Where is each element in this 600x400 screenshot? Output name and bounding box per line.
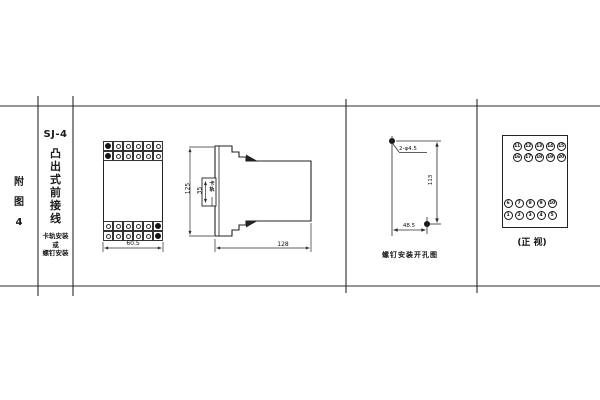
terminal-screw-icon [156, 144, 161, 149]
terminal-screw-icon [126, 234, 131, 239]
front-view-terminal-grid-bottom [103, 221, 163, 241]
terminal-cell [153, 221, 163, 231]
side-view-profile [202, 146, 311, 236]
terminal-cell [123, 151, 133, 161]
hole-spec-label: 2-φ4.5 [399, 146, 417, 152]
depth-dimension: 128 [270, 241, 296, 248]
terminal-screw-icon [136, 224, 141, 229]
terminal-pin: 20 [557, 153, 566, 162]
terminal-screw-icon [126, 224, 131, 229]
wiring-type-char: 出 [39, 160, 72, 173]
mount-method-line: 卡轨安装 [39, 232, 72, 241]
terminal-pin: 14 [546, 142, 555, 151]
terminal-cell [103, 141, 113, 151]
terminal-pin: 1 [504, 211, 513, 220]
wiring-type-char: 接 [39, 199, 72, 212]
wiring-type-char: 线 [39, 212, 72, 225]
terminal-screw-icon [156, 154, 161, 159]
terminal-screw-icon [116, 144, 121, 149]
terminal-cell [113, 151, 123, 161]
terminal-cell [153, 141, 163, 151]
terminal-screw-icon [146, 234, 151, 239]
mount-method-line: 螺钉安装 [39, 249, 72, 258]
figure-label: 附图4 [0, 173, 38, 233]
wiring-type-char: 式 [39, 173, 72, 186]
terminal-pin: 16 [513, 153, 522, 162]
terminal-pin: 2 [515, 211, 524, 220]
terminal-screw-icon [105, 153, 111, 159]
terminal-screw-icon [136, 144, 141, 149]
figure-label-char: 图 [0, 193, 38, 213]
terminal-pin: 18 [535, 153, 544, 162]
terminal-screw-icon [136, 154, 141, 159]
terminal-cell [143, 141, 153, 151]
technical-drawing-sheet: 附图4 SJ-4 凸出式前接线 卡轨安装或螺钉安装 60.5 125 35 卡轨… [0, 0, 600, 400]
terminal-screw-icon [146, 144, 151, 149]
terminal-cell [113, 141, 123, 151]
terminal-cell [133, 141, 143, 151]
terminal-pin: 4 [537, 211, 546, 220]
terminal-cell [143, 151, 153, 161]
height-dimension: 125 [185, 179, 192, 199]
terminal-pin: 8 [526, 199, 535, 208]
clip-wedge-bottom [246, 221, 258, 228]
terminal-screw-icon [116, 234, 121, 239]
terminal-caption: (正 视) [505, 235, 559, 248]
terminal-cell [133, 151, 143, 161]
terminal-pin: 11 [513, 142, 522, 151]
terminal-pin: 5 [548, 211, 557, 220]
terminal-pin: 10 [548, 199, 557, 208]
terminal-pin: 12 [524, 142, 533, 151]
terminal-cell [103, 231, 113, 241]
terminal-pin: 15 [557, 142, 566, 151]
terminal-pin: 13 [535, 142, 544, 151]
terminal-screw-icon [105, 143, 111, 149]
terminal-pin: 19 [546, 153, 555, 162]
terminal-screw-icon [106, 224, 111, 229]
wiring-type-char: 凸 [39, 147, 72, 160]
vertical-dimension: 113 [428, 172, 434, 188]
terminal-pin: 17 [524, 153, 533, 162]
terminal-cell [153, 231, 163, 241]
terminal-cell [103, 151, 113, 161]
figure-label-char: 附 [0, 173, 38, 193]
terminal-screw-icon [136, 234, 141, 239]
clip-wedge-top [246, 155, 258, 162]
drill-caption: 螺钉安装开孔图 [370, 250, 450, 260]
terminal-cell [143, 221, 153, 231]
terminal-cell [123, 141, 133, 151]
terminal-pin: 9 [537, 199, 546, 208]
model-label: SJ-4 [39, 129, 72, 140]
terminal-pin: 6 [504, 199, 513, 208]
terminal-cell [113, 221, 123, 231]
terminal-screw-icon [116, 154, 121, 159]
mount-method-label: 卡轨安装或螺钉安装 [39, 232, 72, 258]
width-dimension: 60.5 [117, 240, 149, 247]
wiring-type-label: 凸出式前接线 [39, 147, 72, 225]
terminal-cell [153, 151, 163, 161]
terminal-pin: 3 [526, 211, 535, 220]
mount-method-line: 或 [39, 241, 72, 250]
horizontal-dimension: 48.5 [395, 223, 423, 229]
rail-clip-label: 卡轨 [208, 181, 216, 193]
terminal-screw-icon [146, 154, 151, 159]
wiring-type-char: 前 [39, 186, 72, 199]
terminal-screw-icon [106, 234, 111, 239]
terminal-screw-icon [126, 154, 131, 159]
terminal-cell [133, 221, 143, 231]
front-view-terminal-grid-top [103, 141, 163, 161]
terminal-screw-icon [146, 224, 151, 229]
terminal-screw-icon [155, 233, 161, 239]
terminal-screw-icon [155, 223, 161, 229]
terminal-screw-icon [116, 224, 121, 229]
terminal-cell [123, 221, 133, 231]
terminal-pin: 7 [515, 199, 524, 208]
terminal-screw-icon [126, 144, 131, 149]
clip-dimension: 35 [197, 183, 204, 199]
terminal-cell [103, 221, 113, 231]
figure-label-char: 4 [0, 213, 38, 233]
